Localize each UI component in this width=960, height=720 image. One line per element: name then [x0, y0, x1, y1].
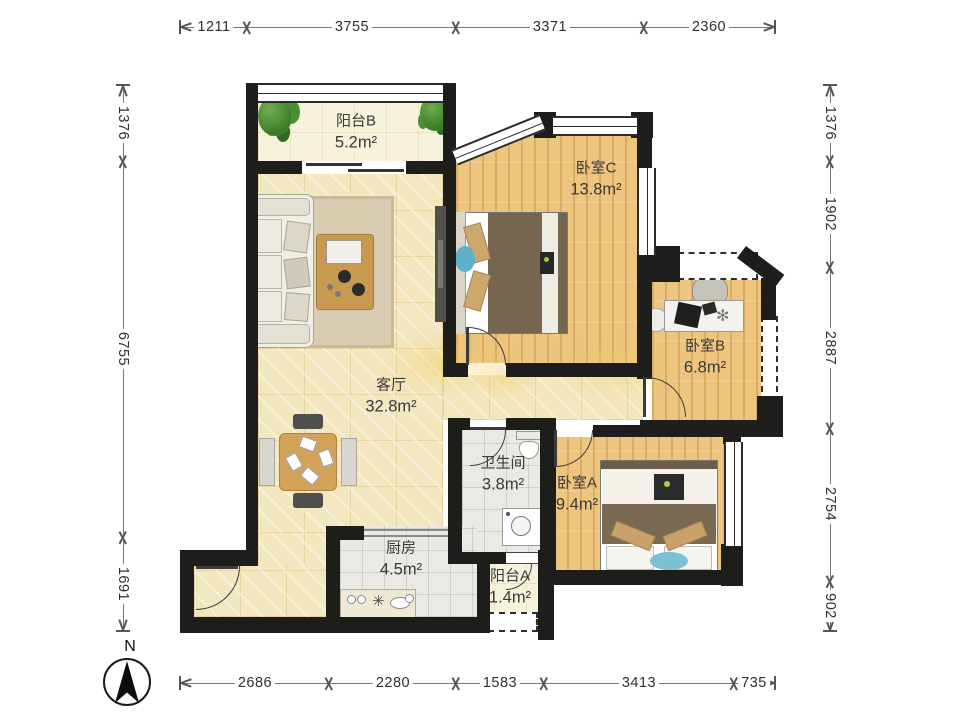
dim-tick	[322, 676, 336, 690]
sofa-cushion	[254, 291, 282, 322]
bedroom-a-window	[724, 442, 743, 546]
dim-tick	[537, 676, 551, 690]
dimension-line-top	[180, 27, 775, 28]
washer-drum	[511, 516, 531, 536]
room-area: 3.8m²	[480, 474, 525, 496]
balcony-b-window	[258, 83, 443, 103]
room-area: 13.8m²	[570, 179, 621, 201]
tv-screen	[438, 240, 443, 288]
room-label-balcony-b: 阳台B 5.2m²	[335, 112, 377, 155]
room-name: 卫生间	[480, 454, 525, 474]
bed-tv-panel	[540, 252, 554, 274]
kettle	[352, 283, 365, 296]
dim-tick	[449, 20, 463, 34]
washer-knob	[506, 512, 510, 516]
dining-chair	[293, 414, 323, 429]
laptop	[674, 302, 702, 329]
dining-bench	[259, 438, 275, 486]
kitchen-opening	[364, 535, 448, 537]
sofa-cushion	[254, 219, 282, 253]
sofa-pillow	[283, 220, 311, 253]
dim-value: 1376	[115, 103, 131, 143]
wall-segment	[448, 418, 462, 564]
dim-value: 3413	[619, 675, 659, 691]
toilet-tank	[516, 431, 542, 440]
wall-segment	[246, 163, 258, 562]
bedroom-c-bay-window	[553, 116, 637, 136]
dim-value: 902	[822, 590, 838, 622]
wall-segment	[637, 138, 652, 170]
dim-value: 2754	[822, 484, 838, 524]
cup	[335, 291, 341, 297]
bed-tv-panel	[654, 474, 684, 500]
room-name: 卧室A	[556, 474, 598, 494]
dim-value: 1583	[480, 675, 520, 691]
dim-value: 6755	[115, 329, 131, 369]
dim-value: 1376	[822, 103, 838, 143]
compass: N	[100, 638, 160, 713]
round-pillow	[455, 246, 475, 272]
wall-segment	[326, 526, 364, 540]
dim-value: 1902	[822, 194, 838, 234]
balcony-a-door-band	[506, 552, 538, 564]
dining-bench	[341, 438, 357, 486]
dim-tick	[823, 154, 837, 168]
sliding-door-panel	[348, 169, 404, 172]
dim-tick	[240, 20, 254, 34]
wall-segment	[443, 363, 468, 377]
room-name: 客厅	[365, 376, 416, 396]
room-label-balcony-a: 阳台A 1.4m²	[489, 567, 531, 610]
balcony-a-open-edge-dashed	[488, 612, 538, 632]
sofa-cushion	[254, 255, 282, 289]
cup	[327, 284, 333, 290]
corridor-floor	[443, 375, 643, 420]
dim-value: 2686	[235, 675, 275, 691]
room-name: 阳台A	[489, 567, 531, 587]
wall-segment	[326, 526, 340, 625]
sofa-pillow	[283, 257, 310, 290]
dim-value: 2280	[373, 675, 413, 691]
compass-label: N	[124, 638, 136, 656]
bed-head-strip	[601, 461, 717, 469]
room-label-bathroom: 卫生间 3.8m²	[480, 454, 525, 497]
bed-footband	[558, 213, 567, 333]
sofa-armrest	[254, 198, 310, 216]
dim-value: 1211	[194, 19, 233, 35]
dim-value: 3371	[530, 19, 570, 35]
room-name: 卧室B	[684, 337, 726, 357]
bedroom-c-east-window	[637, 168, 656, 255]
wall-segment	[640, 420, 783, 437]
sliding-door-panel	[306, 163, 362, 166]
kitchen-opening	[364, 529, 448, 531]
living-room-floor-strip	[258, 533, 326, 566]
indicator-dot	[544, 257, 549, 262]
desk-plant-icon: ✻	[716, 306, 729, 326]
dim-value: 2887	[822, 328, 838, 368]
kettle	[338, 270, 351, 283]
dining-chair	[293, 493, 323, 508]
dim-tick	[449, 676, 463, 690]
room-label-kitchen: 厨房 4.5m²	[380, 539, 422, 582]
dim-value: 1691	[115, 564, 131, 604]
wall-segment	[547, 570, 743, 585]
dim-value: 3755	[332, 19, 372, 35]
room-area: 9.4m²	[556, 494, 598, 516]
dim-value: 735	[738, 675, 770, 691]
indicator-dot	[664, 481, 670, 487]
stove-icon: ✳	[372, 592, 385, 610]
dim-tick	[637, 20, 651, 34]
wall-segment	[404, 161, 456, 174]
wall-segment	[761, 278, 776, 320]
room-name: 厨房	[380, 539, 422, 559]
sofa-armrest	[254, 324, 310, 344]
sink-bowl	[357, 595, 366, 604]
sink-bowl	[347, 595, 356, 604]
bed-blanket	[488, 213, 542, 333]
room-label-bedroom-c: 卧室C 13.8m²	[570, 159, 621, 202]
wall-segment	[723, 424, 741, 444]
coffee-table-tray	[326, 240, 362, 264]
dim-tick	[823, 574, 837, 588]
room-label-bedroom-b: 卧室B 6.8m²	[684, 337, 726, 380]
room-area: 1.4m²	[489, 587, 531, 609]
wall-segment	[757, 396, 783, 422]
wall-segment	[506, 363, 640, 377]
bedroom-b-right-bay-dashed	[761, 316, 778, 402]
room-area: 4.5m²	[380, 559, 422, 581]
floor-plan: ✻ ✳ 阳台B 5.2m² 卧室C 13.8m² 卧室B 6.8m² 客厅 32…	[0, 0, 960, 720]
room-area: 32.8m²	[365, 396, 416, 418]
room-area: 5.2m²	[335, 132, 377, 154]
round-pillow	[650, 552, 688, 570]
wall-segment	[538, 550, 554, 640]
dim-tick	[116, 530, 130, 544]
sofa-pillow	[284, 292, 310, 322]
wall-segment	[246, 83, 258, 172]
dim-tick	[823, 260, 837, 274]
dim-tick	[116, 154, 130, 168]
room-label-bedroom-a: 卧室A 9.4m²	[556, 474, 598, 517]
room-name: 卧室C	[570, 159, 621, 179]
dim-tick	[823, 421, 837, 435]
room-name: 阳台B	[335, 112, 377, 132]
dim-value: 2360	[689, 19, 729, 35]
dish-round	[405, 594, 414, 603]
room-area: 6.8m²	[684, 357, 726, 379]
room-label-living-room: 客厅 32.8m²	[365, 376, 416, 419]
wall-segment	[593, 425, 640, 437]
wall-segment	[448, 418, 470, 430]
